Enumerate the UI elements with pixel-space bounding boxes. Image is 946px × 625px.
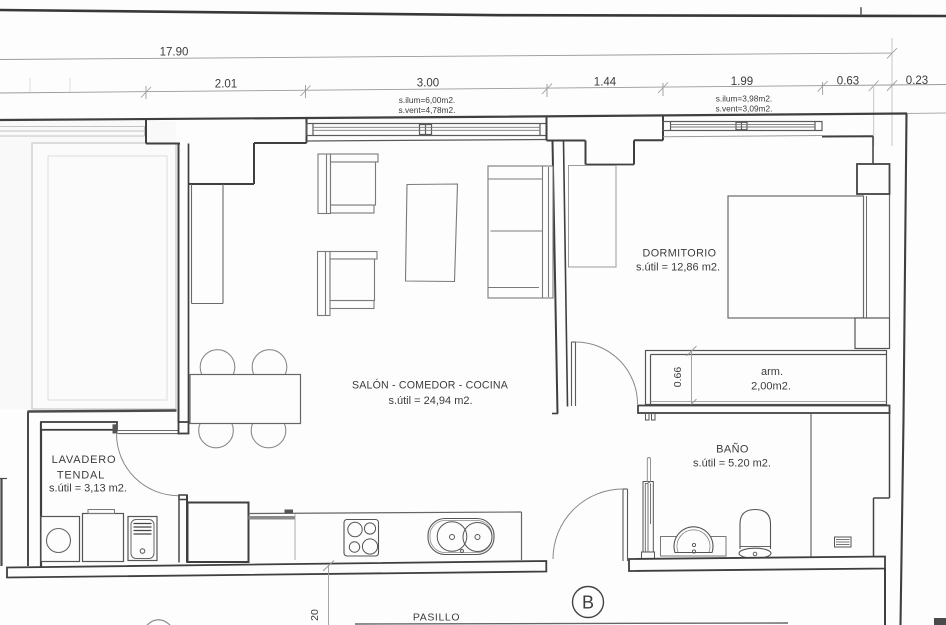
svg-text:1.44: 1.44 — [594, 77, 617, 89]
svg-text:s.útil = 12,86 m2.: s.útil = 12,86 m2. — [636, 262, 720, 274]
svg-text:s.útil = 24,94 m2.: s.útil = 24,94 m2. — [388, 395, 472, 407]
svg-text:s.vent=4,78m2.: s.vent=4,78m2. — [399, 105, 456, 115]
svg-text:s.útil = 5.20 m2.: s.útil = 5.20 m2. — [693, 458, 771, 470]
svg-text:SALÓN - COMEDOR - COCINA: SALÓN - COMEDOR - COCINA — [352, 379, 509, 392]
svg-text:17.90: 17.90 — [160, 47, 189, 59]
svg-text:2.01: 2.01 — [215, 79, 237, 91]
svg-text:s.ilum=3,98m2.: s.ilum=3,98m2. — [716, 94, 773, 104]
svg-text:LAVADERO: LAVADERO — [52, 454, 117, 466]
svg-text:0.66: 0.66 — [672, 367, 684, 388]
svg-text:s.útil = 3,13 m2.: s.útil = 3,13 m2. — [49, 483, 127, 495]
svg-text:3.00: 3.00 — [417, 78, 439, 90]
svg-text:PASILLO: PASILLO — [413, 612, 460, 624]
svg-text:0.63: 0.63 — [837, 76, 859, 88]
svg-text:BAÑO: BAÑO — [716, 443, 749, 456]
svg-text:DORMITORIO: DORMITORIO — [643, 248, 717, 260]
svg-text:s.ilum=6,00m2.: s.ilum=6,00m2. — [399, 95, 456, 105]
svg-text:s.vent=3,09m2.: s.vent=3,09m2. — [716, 104, 773, 114]
svg-text:TENDAL: TENDAL — [57, 470, 105, 482]
svg-text:B: B — [582, 593, 594, 613]
svg-text:arm.: arm. — [761, 366, 783, 378]
svg-text:2,00m2.: 2,00m2. — [751, 381, 791, 393]
svg-text:1.99: 1.99 — [731, 76, 753, 88]
svg-text:0.23: 0.23 — [906, 75, 928, 87]
svg-text:20: 20 — [309, 609, 321, 621]
